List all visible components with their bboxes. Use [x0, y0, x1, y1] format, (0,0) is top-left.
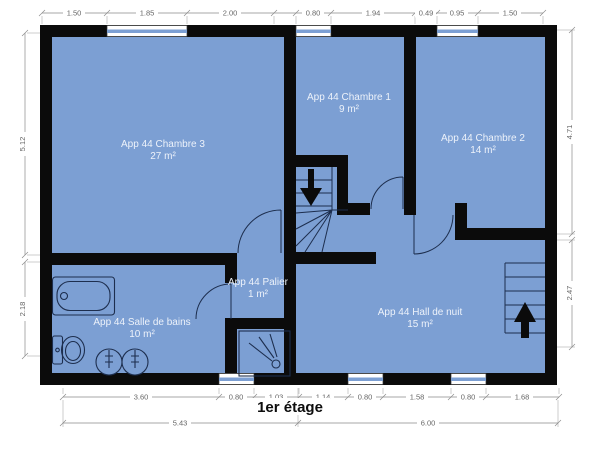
- dim-value: 4.71: [565, 125, 574, 140]
- room-area: 15 m²: [407, 319, 433, 330]
- window-bottom-3: [451, 374, 486, 385]
- wall-stairs-bottom: [296, 252, 376, 264]
- dim-value: 5.43: [173, 419, 188, 428]
- wall-center-vertical: [284, 37, 296, 373]
- floor-plan-drawing: App 44 Chambre 3 27 m² App 44 Chambre 1 …: [0, 0, 600, 450]
- window-top-3: [437, 26, 478, 37]
- room-area: 27 m²: [150, 151, 176, 162]
- dimension-right: 4.71 2.47: [557, 27, 577, 350]
- wall-chambre2-bottom: [455, 228, 545, 240]
- dimension-top: 1.50 1.85 2.00 0.80 1.94 0.49 0.95 1.50: [39, 9, 546, 25]
- dim-value: 2.18: [18, 302, 27, 317]
- room-name: App 44 Salle de bains: [93, 317, 190, 328]
- dim-value: 1.85: [140, 9, 155, 18]
- dim-value: 0.95: [450, 9, 465, 18]
- room-area: 9 m²: [339, 104, 360, 115]
- dim-value: 0.80: [461, 393, 476, 402]
- dim-value: 0.49: [419, 9, 434, 18]
- window-bottom-1: [219, 374, 254, 385]
- dim-value: 1.58: [410, 393, 425, 402]
- room-name: App 44 Chambre 1: [307, 92, 391, 103]
- dimension-left: 5.12 2.18: [18, 30, 40, 359]
- room-area: 1 m²: [248, 289, 269, 300]
- wall-shower-top: [225, 318, 284, 329]
- page-title: 1er étage: [257, 399, 323, 416]
- dim-value: 0.80: [229, 393, 244, 402]
- sink-right-icon: [122, 349, 148, 375]
- room-name: App 44 Palier: [228, 277, 289, 288]
- room-name: App 44 Hall de nuit: [378, 307, 463, 318]
- window-top-1: [107, 26, 187, 37]
- dim-value: 2.47: [565, 286, 574, 301]
- dim-value: 2.00: [223, 9, 238, 18]
- dim-value: 1.68: [515, 393, 530, 402]
- floor-plan-page: App 44 Chambre 3 27 m² App 44 Chambre 1 …: [0, 0, 600, 450]
- dim-value: 1.94: [366, 9, 381, 18]
- dim-value: 6.00: [421, 419, 436, 428]
- room-name: App 44 Chambre 3: [121, 139, 205, 150]
- dim-value: 1.50: [67, 9, 82, 18]
- dim-value: 0.80: [306, 9, 321, 18]
- window-top-2: [296, 26, 331, 37]
- wall-hall-top-left: [348, 203, 370, 215]
- room-name: App 44 Chambre 2: [441, 133, 525, 144]
- wall-bathroom-top: [52, 253, 237, 265]
- room-area: 10 m²: [129, 329, 155, 340]
- wall-chambre1-chambre2-divider: [404, 37, 416, 215]
- window-bottom-2: [348, 374, 383, 385]
- wall-stairs-right: [337, 155, 348, 215]
- sink-left-icon: [96, 349, 122, 375]
- wall-outer-left: [40, 25, 52, 385]
- dim-value: 3.60: [134, 393, 149, 402]
- room-area: 14 m²: [470, 145, 496, 156]
- dim-value: 1.50: [503, 9, 518, 18]
- dim-value: 5.12: [18, 137, 27, 152]
- wall-outer-right: [545, 25, 557, 385]
- dim-value: 0.80: [358, 393, 373, 402]
